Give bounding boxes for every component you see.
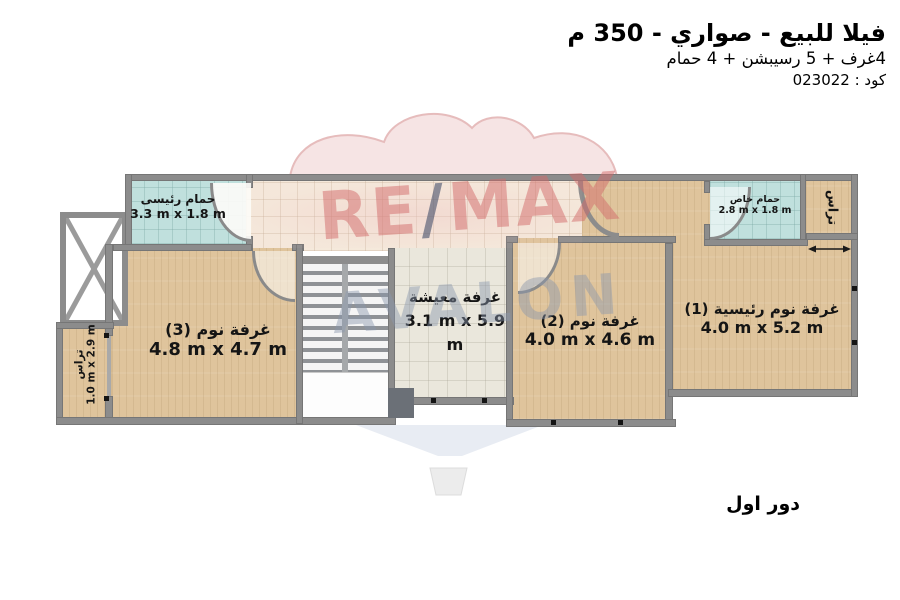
window — [107, 336, 111, 398]
wall — [125, 174, 858, 181]
label-bedroom-3: غرفة نوم (3) 4.8 m x 4.7 m — [128, 320, 308, 360]
window-marker — [852, 286, 857, 291]
floorplan-page: حمام رئيسى 3.3 m x 1.8 m غرفة نوم (3) 4.… — [0, 0, 900, 600]
wall — [506, 419, 676, 427]
balloon-taper — [356, 425, 543, 456]
room-dims: 4.0 m x 4.6 m — [510, 330, 670, 350]
stair-top-wall — [300, 256, 390, 264]
wall — [113, 244, 252, 251]
room-dims: 3.3 m x 1.8 m — [118, 206, 238, 221]
label-terrace-left: تراس 1.0 m x 2.9 m — [73, 310, 98, 420]
wall-stub — [388, 388, 414, 418]
window-marker — [431, 398, 436, 403]
room-dims: 4.8 m x 4.7 m — [128, 339, 308, 360]
stair-flight — [348, 264, 390, 374]
window-marker — [852, 340, 857, 345]
window-marker — [104, 396, 109, 401]
room-name: غرفة نوم (2) — [510, 312, 670, 330]
balloon-basket — [430, 468, 467, 495]
wall — [668, 389, 858, 397]
room-name: تراس — [73, 310, 86, 420]
room-name: غرفة معيشة — [395, 286, 515, 309]
staircase — [300, 264, 390, 374]
listing-code: كود : 023022 — [567, 70, 886, 90]
label-master-bedroom: غرفة نوم رئيسية (1) 4.0 m x 5.2 m — [672, 300, 852, 337]
room-name: حمام رئيسى — [118, 192, 238, 206]
room-dims: 1.0 m x 2.9 m — [86, 310, 98, 420]
window-marker — [482, 398, 487, 403]
wall — [388, 248, 395, 405]
room-name: تراس — [825, 178, 840, 238]
room-name: غرفة نوم رئيسية (1) — [672, 300, 852, 318]
x-cross-icon — [66, 218, 122, 320]
wall — [56, 322, 63, 424]
room-dims: 3.1 m x 5.9 m — [395, 309, 515, 357]
floor-name-label: دور اول — [726, 493, 800, 515]
listing-subtitle: 4غرف + 5 رسيبشن + 4 حمام — [567, 48, 886, 70]
balloon-dome — [290, 114, 617, 177]
room-name: غرفة نوم (3) — [128, 320, 308, 339]
label-terrace-right: تراس — [825, 178, 840, 238]
label-private-bathroom: حمام خاص 2.8 m x 1.8 m — [705, 194, 805, 216]
wall — [704, 239, 808, 246]
listing-title: فيلا للبيع - صواري - 350 م — [567, 20, 886, 48]
wall — [56, 417, 396, 425]
label-main-bathroom: حمام رئيسى 3.3 m x 1.8 m — [118, 192, 238, 221]
stair-landing — [300, 372, 390, 418]
room-name: حمام خاص — [705, 194, 805, 205]
window-marker — [104, 333, 109, 338]
window-marker — [551, 420, 556, 425]
listing-header: فيلا للبيع - صواري - 350 م 4غرف + 5 رسيب… — [567, 20, 886, 90]
room-dims: 2.8 m x 1.8 m — [705, 205, 805, 216]
window-marker — [618, 420, 623, 425]
wall — [506, 236, 518, 243]
label-bedroom-2: غرفة نوم (2) 4.0 m x 4.6 m — [510, 312, 670, 350]
room-dims: 4.0 m x 5.2 m — [672, 318, 852, 337]
label-living-room: غرفة معيشة 3.1 m x 5.9 m — [395, 286, 515, 357]
